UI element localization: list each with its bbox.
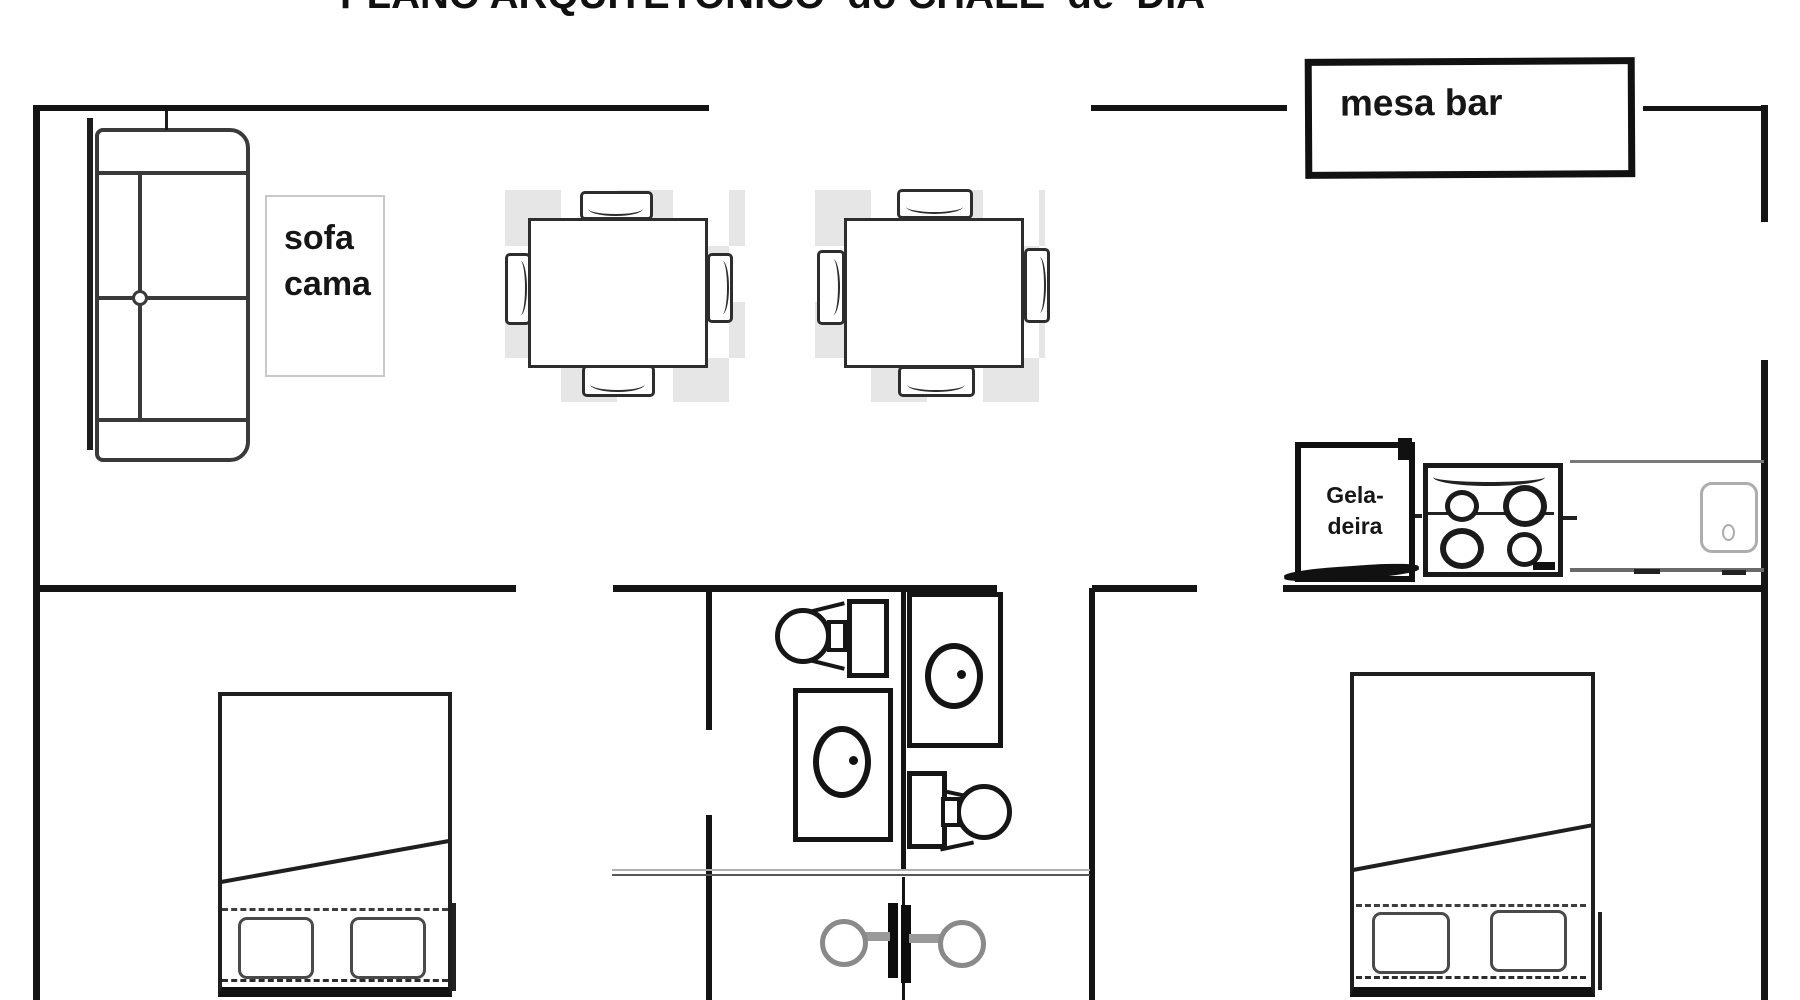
sofa-tick [165, 111, 168, 130]
table2-chair-left-arc [826, 259, 840, 316]
vanity2-basin [925, 643, 983, 709]
toilet1-seat [827, 620, 847, 652]
refrigerator-label-line1: Gela- [1301, 480, 1409, 511]
table2-top [844, 218, 1024, 368]
table2-chair-top-arc [906, 199, 963, 214]
table1-chair-bottom [582, 365, 655, 397]
table2-chair-right-arc [1033, 257, 1046, 314]
stove-top-arc [1433, 468, 1545, 486]
bed-left-scallop-line [222, 979, 448, 982]
bed-left-pillow-2 [350, 917, 426, 979]
bed-right-frame-accent [1598, 912, 1602, 990]
mesa-bar-table: mesa bar [1305, 57, 1636, 179]
toilet2-bowl [956, 784, 1012, 840]
wall-bath-center [901, 588, 906, 870]
door-knob-left [820, 919, 868, 967]
vanity1-drain-dot [849, 756, 858, 765]
table2-chair-bottom [898, 366, 975, 397]
toilet1-bowl [775, 608, 831, 664]
stove-dash-mark [1533, 562, 1555, 570]
bed-left-pillow-1 [238, 917, 314, 979]
table1-chair-bottom-arc [590, 376, 645, 392]
floor-plan: PLANO ARQUITETÔNICO do CHALÉ de DIA sofa… [0, 0, 1800, 1000]
wall-left [33, 105, 40, 1000]
sofa-cama-label-line2: cama [284, 261, 383, 307]
sofa-armrest-top-line [97, 171, 247, 175]
table2-chair-top [897, 189, 973, 219]
table2-chair-bottom-arc [907, 377, 965, 393]
wall-mid-b [613, 585, 997, 592]
bed-left-frame-accent [452, 903, 456, 991]
wall-bath-left-lower [706, 815, 712, 1000]
stove-burner-top-left [1445, 490, 1479, 522]
sofa-cama-label: sofa cama [265, 195, 385, 377]
door-leaf-right [901, 905, 911, 983]
door-knob-right-bar [909, 934, 940, 943]
wall-mid-d [1283, 585, 1768, 592]
counter-dash-1 [1634, 569, 1660, 574]
table1-chair-left-arc [514, 261, 527, 315]
counter-dash-2 [1722, 570, 1746, 575]
threshold-line-light [612, 869, 1090, 871]
bed-right-scallop-line [1356, 976, 1586, 979]
table1-top [528, 218, 708, 368]
table2-chair-right [1024, 248, 1050, 323]
mesa-bar-label: mesa bar [1312, 64, 1628, 125]
bed-right-pillow-1 [1372, 912, 1450, 974]
bed-right-pillow-line [1356, 904, 1586, 907]
wall-bath-left-upper [706, 590, 712, 730]
sofa-seat-divider-line [97, 296, 247, 300]
threshold-line-dark [612, 874, 1090, 876]
table1-chair-right-arc [716, 261, 729, 313]
vanity1-basin [813, 726, 871, 798]
refrigerator-corner-mark [1398, 438, 1412, 460]
table1-chair-right [707, 253, 733, 323]
wall-mid-a [33, 585, 516, 592]
stove-burner-top-right [1503, 485, 1547, 527]
wall-mid-c [1092, 585, 1197, 592]
counter-top-line [1570, 460, 1764, 463]
sofa-button [132, 290, 148, 306]
table1-chair-top-arc [588, 201, 643, 216]
table1-chair-top [580, 191, 653, 220]
page-title: PLANO ARQUITETÔNICO do CHALÉ de DIA [340, 0, 1180, 18]
refrigerator: Gela- deira [1295, 442, 1415, 582]
kitchen-sink [1700, 482, 1758, 553]
sofa-armrest-bottom-line [97, 418, 247, 422]
toilet2-seat [941, 797, 961, 827]
vanity2-drain-dot [957, 670, 966, 679]
wall-top-corner [1643, 106, 1765, 111]
wall-right-upper [1761, 105, 1768, 222]
wall-right-lower [1761, 360, 1768, 1000]
sofa-wall-line [87, 118, 93, 450]
toilet1-tank [847, 599, 889, 678]
stove-burner-bottom-left [1440, 528, 1484, 569]
door-knob-right [938, 920, 986, 968]
sofa-outline [95, 128, 250, 462]
wall-bath-right [1089, 588, 1095, 1000]
bed-left-pillow-line [222, 908, 448, 911]
sofa-cama-label-line1: sofa [284, 215, 383, 261]
wall-top-left [33, 105, 709, 111]
refrigerator-label-line2: deira [1301, 511, 1409, 542]
table2-chair-left [817, 250, 845, 325]
kitchen-sink-drain [1722, 524, 1735, 541]
bed-right-pillow-2 [1490, 910, 1567, 972]
wall-top-right [1091, 105, 1287, 111]
